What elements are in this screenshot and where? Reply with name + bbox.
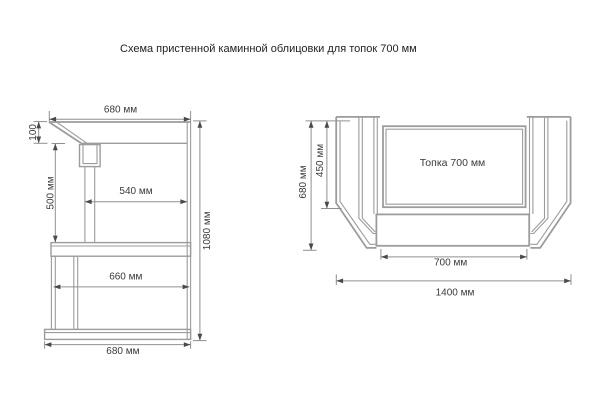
dim-label-firebox-width: 700 мм <box>434 258 467 269</box>
left-leg-mid-line-b <box>362 117 375 232</box>
base-platform <box>376 214 529 245</box>
dim-label-lower-width: 660 мм <box>109 272 142 283</box>
base-plinth <box>45 329 191 339</box>
drawing-canvas: Схема пристенной каминной облицовки для … <box>0 0 600 400</box>
dim-base-width: 680 мм <box>45 341 191 357</box>
right-leg-mid-line-b <box>532 117 545 232</box>
dim-label-front-total-height: 680 мм <box>298 165 309 198</box>
lower-inner-panel <box>74 256 78 329</box>
hood-slant-inner <box>57 122 88 143</box>
front-view-structure: Топка 700 мм <box>336 117 570 248</box>
dim-front-opening-height: 450 мм <box>315 121 342 209</box>
left-leg-outer-inner-line <box>340 121 376 245</box>
dim-label-total-height: 1080 мм <box>202 211 213 250</box>
dim-opening-height: 500 мм <box>46 144 65 243</box>
side-view-structure <box>45 122 191 339</box>
right-leg <box>527 117 571 248</box>
left-leg <box>336 117 380 248</box>
middle-shelf <box>51 243 191 257</box>
firebox: Топка 700 мм <box>383 126 526 207</box>
dim-label-front-opening-height: 450 мм <box>315 144 326 177</box>
dim-total-height: 1080 мм <box>193 121 213 341</box>
dim-front-total-height: 680 мм <box>298 121 350 250</box>
corbel-inner-detail <box>83 145 97 164</box>
dim-front-total-width: 1400 мм <box>336 274 571 298</box>
side-view: 680 мм 100 500 мм 540 мм <box>28 105 213 357</box>
dim-firebox-width: 700 мм <box>381 249 527 269</box>
right-leg-outer-contour <box>530 117 570 248</box>
lower-front-panel <box>51 256 55 329</box>
dim-label-hood-height: 100 <box>28 124 39 141</box>
firebox-label: Топка 700 мм <box>420 157 486 169</box>
dim-label-front-total-width: 1400 мм <box>436 287 475 298</box>
right-leg-outer-inner-line <box>530 121 566 245</box>
front-view: Топка 700 мм 680 мм 450 мм <box>298 117 571 299</box>
dim-label-base-width: 680 мм <box>106 346 139 357</box>
fireplace-cladding-scheme: Схема пристенной каминной облицовки для … <box>0 0 600 400</box>
back-wall-panel <box>187 122 190 339</box>
left-leg-outer-contour <box>336 117 376 248</box>
dim-depth: 540 мм <box>85 186 187 202</box>
dim-top-width: 680 мм <box>49 105 190 122</box>
hood-slant-outer <box>49 122 81 143</box>
page-title: Схема пристенной каминной облицовки для … <box>120 43 417 55</box>
dim-hood-height: 100 <box>28 122 48 144</box>
dim-label-depth: 540 мм <box>119 186 152 197</box>
dim-label-top-width: 680 мм <box>104 105 137 116</box>
dim-label-opening-height: 500 мм <box>46 176 57 209</box>
